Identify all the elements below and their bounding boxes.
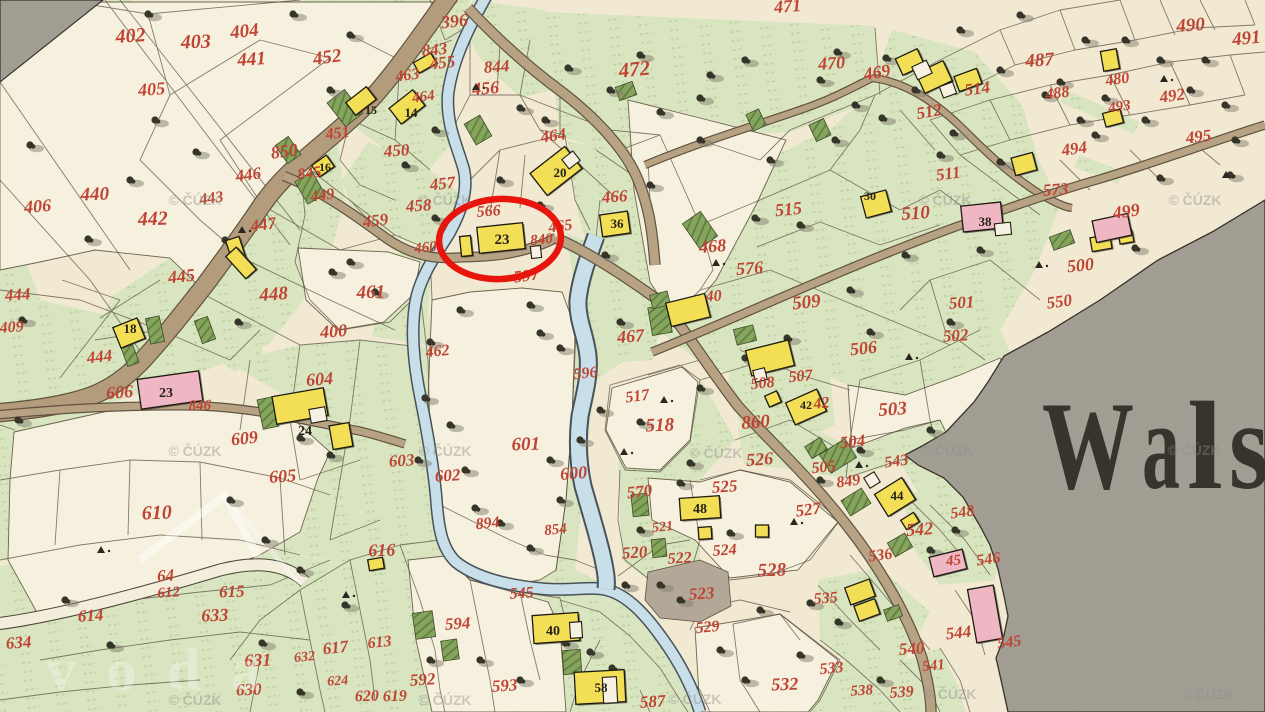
svg-text:532: 532	[771, 674, 799, 695]
svg-text:493: 493	[1106, 97, 1132, 116]
svg-text:634: 634	[5, 632, 32, 653]
svg-text:64: 64	[156, 565, 174, 585]
svg-text:600: 600	[559, 462, 587, 484]
svg-text:509: 509	[791, 291, 822, 315]
svg-text:452: 452	[311, 45, 344, 70]
svg-text:616: 616	[368, 540, 396, 561]
svg-text:593: 593	[491, 675, 518, 696]
svg-text:495: 495	[1184, 126, 1213, 148]
svg-text:605: 605	[268, 465, 296, 487]
svg-text:© ČÚZK: © ČÚZK	[1181, 685, 1234, 702]
svg-text:527: 527	[794, 498, 823, 521]
svg-text:© ČÚZK: © ČÚZK	[418, 691, 471, 708]
svg-text:448: 448	[258, 283, 289, 306]
svg-text:© ČÚZK: © ČÚZK	[668, 690, 721, 707]
svg-text:587: 587	[639, 691, 667, 712]
svg-text:502: 502	[942, 325, 969, 346]
svg-text:396: 396	[439, 10, 469, 33]
svg-text:545: 545	[509, 584, 534, 603]
svg-text:522: 522	[667, 549, 692, 568]
svg-text:596: 596	[573, 364, 599, 383]
svg-text:440: 440	[79, 183, 110, 205]
svg-text:602: 602	[434, 465, 461, 486]
svg-text:606: 606	[105, 381, 133, 403]
svg-text:491: 491	[1230, 27, 1262, 51]
svg-text:615: 615	[219, 582, 246, 602]
svg-text:528: 528	[757, 559, 787, 581]
svg-text:844: 844	[483, 56, 510, 77]
svg-text:543: 543	[883, 451, 909, 471]
svg-text:860: 860	[741, 411, 771, 434]
svg-text:36: 36	[611, 216, 625, 231]
svg-text:576: 576	[735, 257, 763, 279]
svg-text:520: 520	[621, 542, 648, 563]
svg-text:488: 488	[1043, 83, 1070, 103]
svg-text:601: 601	[511, 434, 540, 456]
svg-text:501: 501	[948, 292, 975, 313]
svg-text:536: 536	[867, 545, 893, 565]
svg-text:620: 620	[355, 688, 380, 706]
svg-text:24: 24	[298, 424, 312, 439]
svg-text:492: 492	[1157, 84, 1186, 107]
svg-text:544: 544	[945, 622, 972, 644]
svg-text:614: 614	[77, 605, 104, 626]
svg-text:40: 40	[546, 624, 560, 639]
svg-text:442: 442	[136, 207, 168, 230]
svg-text:© ČÚZK: © ČÚZK	[418, 191, 471, 208]
svg-text:507: 507	[788, 367, 815, 387]
svg-text:503: 503	[878, 398, 908, 421]
svg-text:511: 511	[935, 162, 962, 184]
svg-text:480: 480	[1103, 69, 1130, 89]
svg-text:523: 523	[688, 583, 715, 604]
svg-text:545: 545	[996, 632, 1022, 652]
svg-text:441: 441	[236, 48, 267, 71]
svg-text:500: 500	[1066, 254, 1095, 277]
svg-text:403: 403	[179, 30, 211, 53]
svg-text:449: 449	[308, 185, 335, 205]
svg-text:573: 573	[1042, 179, 1069, 200]
svg-text:© ČÚZK: © ČÚZK	[923, 685, 976, 702]
svg-text:633: 633	[201, 605, 229, 626]
svg-text:© ČÚZK: © ČÚZK	[1168, 191, 1221, 208]
svg-text:447: 447	[248, 213, 278, 236]
svg-text:464: 464	[538, 124, 567, 147]
svg-text:508: 508	[750, 374, 776, 393]
svg-text:535: 535	[813, 589, 838, 608]
svg-text:594: 594	[444, 613, 471, 634]
svg-text:518: 518	[645, 414, 675, 436]
svg-text:460: 460	[413, 239, 439, 257]
svg-text:505: 505	[811, 458, 837, 477]
svg-text:23: 23	[495, 232, 510, 248]
svg-text:23: 23	[159, 386, 173, 401]
svg-text:517: 517	[624, 386, 651, 406]
svg-text:W: W	[1042, 377, 1134, 516]
svg-text:612: 612	[157, 584, 181, 602]
svg-text:404: 404	[228, 20, 260, 44]
svg-text:524: 524	[712, 541, 737, 560]
svg-text:30: 30	[864, 189, 876, 203]
svg-text:463: 463	[393, 65, 420, 85]
svg-text:462: 462	[424, 342, 451, 362]
svg-text:850: 850	[269, 139, 299, 163]
svg-text:446: 446	[233, 163, 262, 186]
svg-text:515: 515	[774, 198, 803, 221]
svg-text:525: 525	[711, 476, 738, 497]
svg-text:541: 541	[922, 657, 946, 675]
svg-text:461: 461	[355, 282, 385, 304]
svg-text:s: s	[1229, 377, 1265, 516]
svg-text:© ČÚZK: © ČÚZK	[689, 444, 742, 461]
svg-text:459: 459	[361, 210, 390, 232]
svg-text:849: 849	[835, 471, 861, 491]
svg-text:533: 533	[819, 659, 845, 678]
svg-text:514: 514	[963, 77, 991, 99]
svg-text:444: 444	[85, 346, 113, 368]
svg-text:405: 405	[136, 78, 165, 100]
svg-text:15: 15	[365, 103, 377, 117]
svg-text:© ČÚZK: © ČÚZK	[168, 191, 221, 208]
svg-text:470: 470	[816, 52, 845, 74]
svg-text:506: 506	[849, 337, 878, 360]
svg-text:466: 466	[600, 186, 628, 207]
svg-text:570: 570	[626, 481, 654, 503]
svg-text:468: 468	[697, 235, 726, 257]
svg-text:840: 840	[530, 231, 555, 249]
svg-text:846: 846	[188, 398, 212, 415]
svg-text:538: 538	[850, 682, 874, 700]
svg-text:20: 20	[554, 165, 567, 180]
svg-text:632: 632	[293, 649, 315, 666]
svg-text:445: 445	[166, 265, 196, 288]
svg-text:504: 504	[839, 431, 866, 453]
svg-text:548: 548	[949, 502, 975, 522]
svg-text:© ČÚZK: © ČÚZK	[418, 442, 471, 459]
svg-text:540: 540	[898, 638, 925, 659]
svg-text:38: 38	[979, 214, 993, 229]
svg-text:550: 550	[1045, 290, 1073, 312]
svg-text:18: 18	[124, 321, 138, 336]
svg-text:455: 455	[428, 52, 457, 74]
svg-text:521: 521	[651, 519, 673, 536]
svg-text:617: 617	[322, 637, 351, 659]
svg-text:894: 894	[475, 514, 501, 533]
svg-text:444: 444	[3, 284, 31, 305]
svg-text:490: 490	[1175, 14, 1206, 37]
svg-text:603: 603	[388, 450, 415, 471]
svg-text:400: 400	[318, 320, 347, 342]
svg-text:592: 592	[409, 669, 436, 690]
svg-text:604: 604	[305, 368, 333, 390]
svg-text:402: 402	[114, 24, 146, 48]
svg-text:© ČÚZK: © ČÚZK	[920, 441, 973, 458]
svg-text:© ČÚZK: © ČÚZK	[918, 191, 971, 208]
svg-text:44: 44	[891, 488, 905, 503]
svg-text:© ČÚZK: © ČÚZK	[1167, 441, 1220, 458]
svg-text:16: 16	[319, 160, 331, 174]
svg-text:472: 472	[616, 55, 651, 82]
svg-text:529: 529	[695, 618, 721, 637]
svg-text:471: 471	[772, 0, 801, 17]
svg-text:© ČÚZK: © ČÚZK	[168, 442, 221, 459]
svg-text:546: 546	[975, 549, 1001, 569]
svg-text:48: 48	[693, 502, 707, 517]
svg-text:542: 542	[905, 518, 933, 540]
svg-text:610: 610	[141, 501, 172, 524]
svg-text:451: 451	[324, 124, 351, 144]
svg-text:467: 467	[615, 325, 645, 347]
svg-text:494: 494	[1059, 137, 1088, 160]
svg-text:406: 406	[22, 195, 51, 217]
svg-text:624: 624	[327, 673, 349, 689]
svg-text:42: 42	[812, 394, 831, 413]
svg-text:450: 450	[382, 140, 410, 161]
svg-text:45: 45	[944, 552, 962, 570]
svg-text:464: 464	[410, 87, 436, 106]
svg-text:58: 58	[595, 680, 609, 695]
svg-text:42: 42	[800, 398, 812, 412]
svg-text:613: 613	[367, 633, 393, 652]
svg-text:40: 40	[704, 287, 722, 305]
svg-text:499: 499	[1110, 199, 1141, 223]
svg-text:619: 619	[383, 688, 408, 706]
svg-text:526: 526	[745, 448, 773, 470]
svg-text:409: 409	[0, 318, 24, 337]
svg-text:609: 609	[230, 427, 259, 450]
svg-text:854: 854	[544, 521, 569, 539]
svg-text:14: 14	[405, 105, 419, 120]
svg-text:487: 487	[1024, 49, 1056, 72]
svg-text:539: 539	[889, 683, 914, 702]
